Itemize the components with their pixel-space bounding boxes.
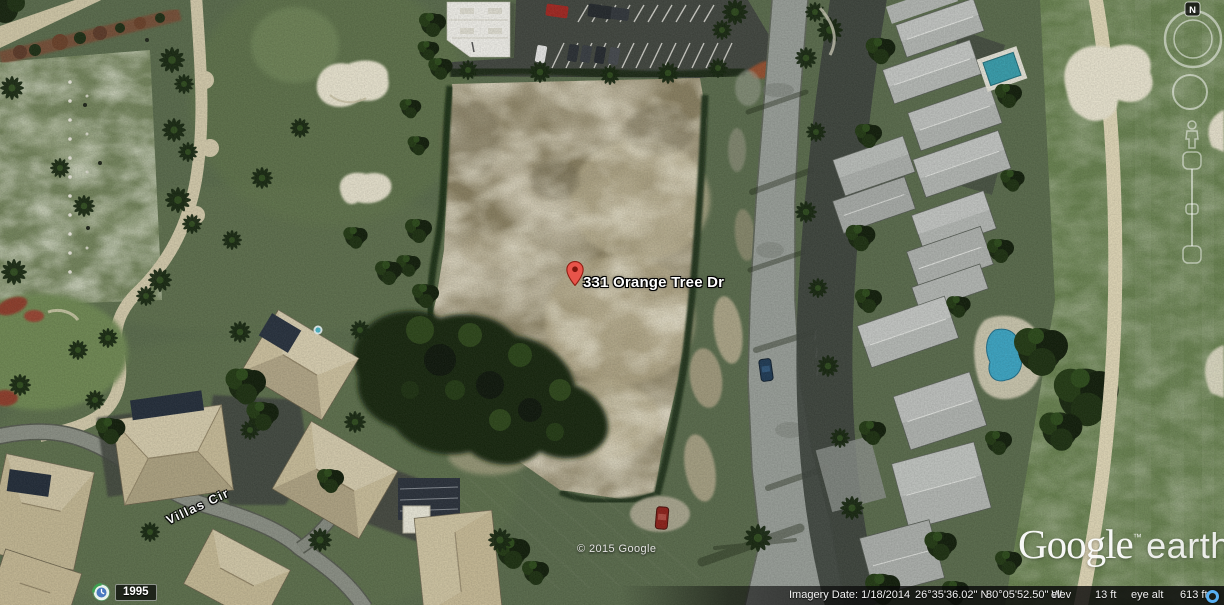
streaming-indicator-icon: [1206, 590, 1219, 603]
look-joystick[interactable]: [1173, 75, 1207, 109]
imagery-date: Imagery Date: 1/18/2014: [789, 589, 910, 601]
placemark-pin-icon[interactable]: [566, 261, 584, 286]
google-earth-logo: Google™ earth: [1018, 520, 1224, 568]
zoom-in-button[interactable]: [1183, 152, 1201, 169]
compass-ring[interactable]: [1165, 11, 1221, 67]
logo-trademark: ™: [1133, 532, 1142, 542]
zoom-slider[interactable]: [1183, 152, 1201, 263]
status-bar: Imagery Date: 1/18/2014 26°35'36.02" N 8…: [0, 586, 1224, 605]
navigation-controls[interactable]: N: [1150, 0, 1224, 280]
google-earth-map-viewport[interactable]: 331 Orange Tree Dr Villas Cir © 2015 Goo…: [0, 0, 1224, 605]
zoom-out-button[interactable]: [1183, 246, 1201, 263]
elev-label: elev: [1051, 589, 1071, 601]
placemark[interactable]: 331 Orange Tree Dr: [566, 261, 786, 297]
map-copyright: © 2015 Google: [577, 543, 656, 555]
logo-earth: earth: [1146, 525, 1224, 566]
north-button[interactable]: N: [1185, 2, 1200, 16]
latitude-readout: 26°35'36.02" N: [915, 589, 988, 601]
svg-text:N: N: [1189, 5, 1196, 16]
eye-altitude-readout: 613 ft: [1180, 589, 1208, 601]
placemark-label[interactable]: 331 Orange Tree Dr: [583, 274, 724, 291]
eye-alt-label: eye alt: [1131, 589, 1163, 601]
elevation-readout: 13 ft: [1095, 589, 1116, 601]
pegman-icon[interactable]: [1186, 121, 1198, 148]
logo-google: Google: [1018, 521, 1133, 567]
